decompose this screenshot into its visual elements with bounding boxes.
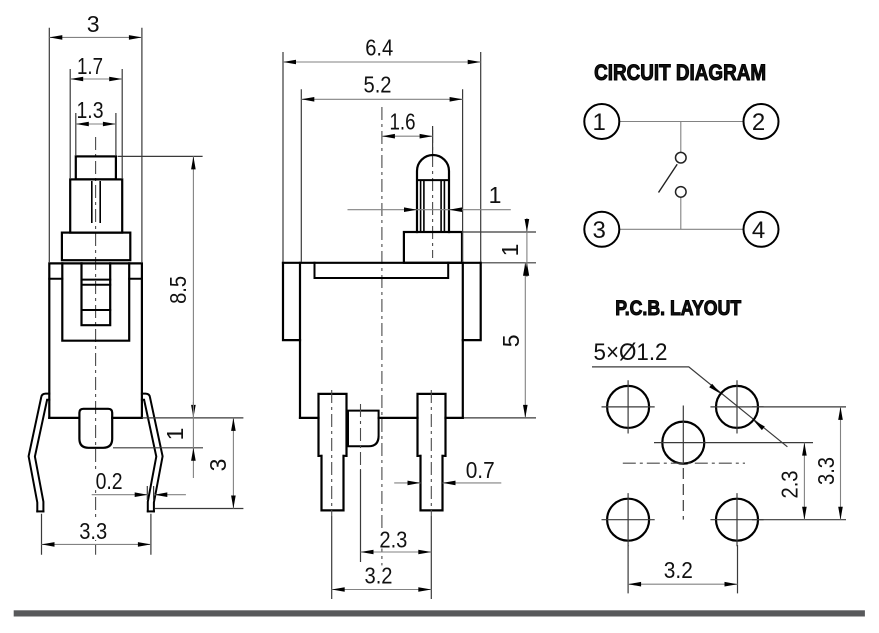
svg-text:3: 3	[87, 11, 100, 37]
svg-text:1.6: 1.6	[390, 109, 416, 135]
svg-text:3: 3	[205, 459, 231, 472]
svg-text:3.2: 3.2	[365, 562, 393, 588]
svg-text:5×Ø1.2: 5×Ø1.2	[594, 339, 668, 366]
svg-text:0.2: 0.2	[96, 468, 123, 494]
svg-text:0.7: 0.7	[466, 457, 495, 483]
svg-text:1: 1	[489, 182, 502, 208]
svg-text:CIRCUIT DIAGRAM: CIRCUIT DIAGRAM	[594, 60, 766, 85]
svg-text:4: 4	[752, 217, 765, 244]
svg-text:8.5: 8.5	[165, 276, 191, 304]
svg-text:2.3: 2.3	[379, 527, 407, 553]
svg-text:5: 5	[498, 334, 524, 347]
svg-text:2.3: 2.3	[777, 471, 803, 499]
svg-text:1.7: 1.7	[77, 53, 103, 79]
svg-text:3.3: 3.3	[813, 457, 839, 485]
svg-text:1: 1	[162, 428, 188, 441]
svg-text:6.4: 6.4	[365, 35, 393, 61]
svg-text:5.2: 5.2	[364, 72, 392, 98]
svg-text:3.3: 3.3	[79, 518, 107, 544]
svg-text:2: 2	[752, 109, 765, 136]
svg-text:1: 1	[593, 109, 606, 136]
svg-text:P.C.B. LAYOUT: P.C.B. LAYOUT	[615, 297, 741, 320]
svg-text:3: 3	[593, 217, 606, 244]
svg-text:1: 1	[497, 244, 523, 257]
svg-text:1.3: 1.3	[77, 97, 104, 123]
svg-text:3.2: 3.2	[664, 557, 693, 583]
